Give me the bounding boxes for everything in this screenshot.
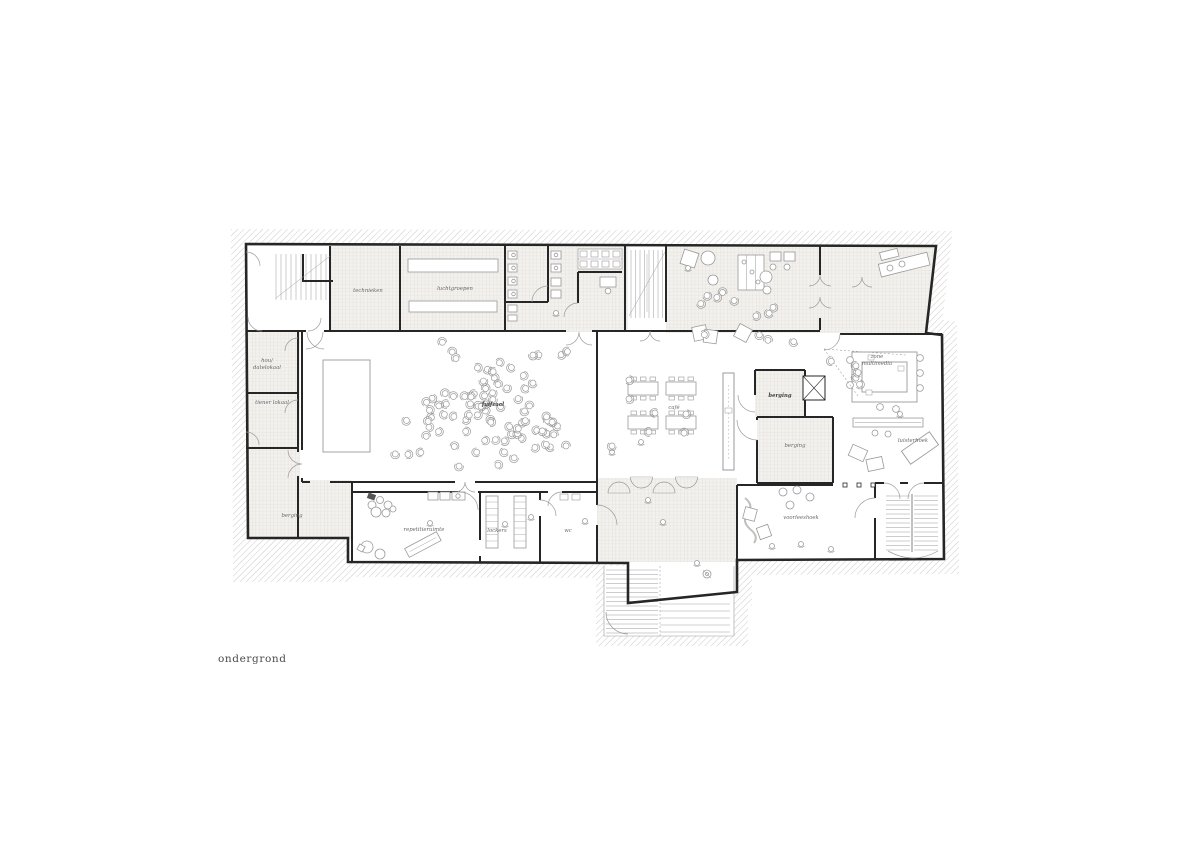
label-hal-line1: hou/ bbox=[261, 358, 274, 364]
label-repetitieruimte: repetitieruimte bbox=[404, 527, 445, 533]
label-technieken: technieken bbox=[353, 288, 383, 294]
label-voorleeshoek: voorleeshoek bbox=[783, 515, 819, 521]
exterior-stair bbox=[604, 566, 734, 636]
label-fuifzaal: fuifzaal bbox=[481, 402, 504, 408]
floorplan-page: technieken luchtgroepen hou/ datelokaal … bbox=[0, 0, 1200, 849]
label-wc: wc bbox=[564, 528, 572, 534]
label-luchtgroepen: luchtgroepen bbox=[437, 286, 473, 292]
floorplan-drawing: technieken luchtgroepen hou/ datelokaal … bbox=[0, 0, 1200, 849]
label-berging-west: berging bbox=[282, 513, 304, 519]
drawing-caption: ondergrond bbox=[218, 653, 287, 665]
label-lockers: lockers bbox=[487, 528, 507, 534]
label-tienerlokaal: tiener lokaal bbox=[255, 400, 289, 406]
label-cafe: café bbox=[668, 404, 679, 411]
label-multimedia-line2: multimedia bbox=[862, 361, 892, 367]
label-luisterhoek: luisterhoek bbox=[898, 438, 928, 444]
label-hal-line2: datelokaal bbox=[253, 365, 281, 371]
label-multimedia-line1: zone bbox=[870, 354, 884, 360]
label-berging-small: berging bbox=[768, 393, 791, 399]
label-berging-large: berging bbox=[785, 443, 807, 449]
hatch-apron-southwest bbox=[233, 538, 352, 582]
